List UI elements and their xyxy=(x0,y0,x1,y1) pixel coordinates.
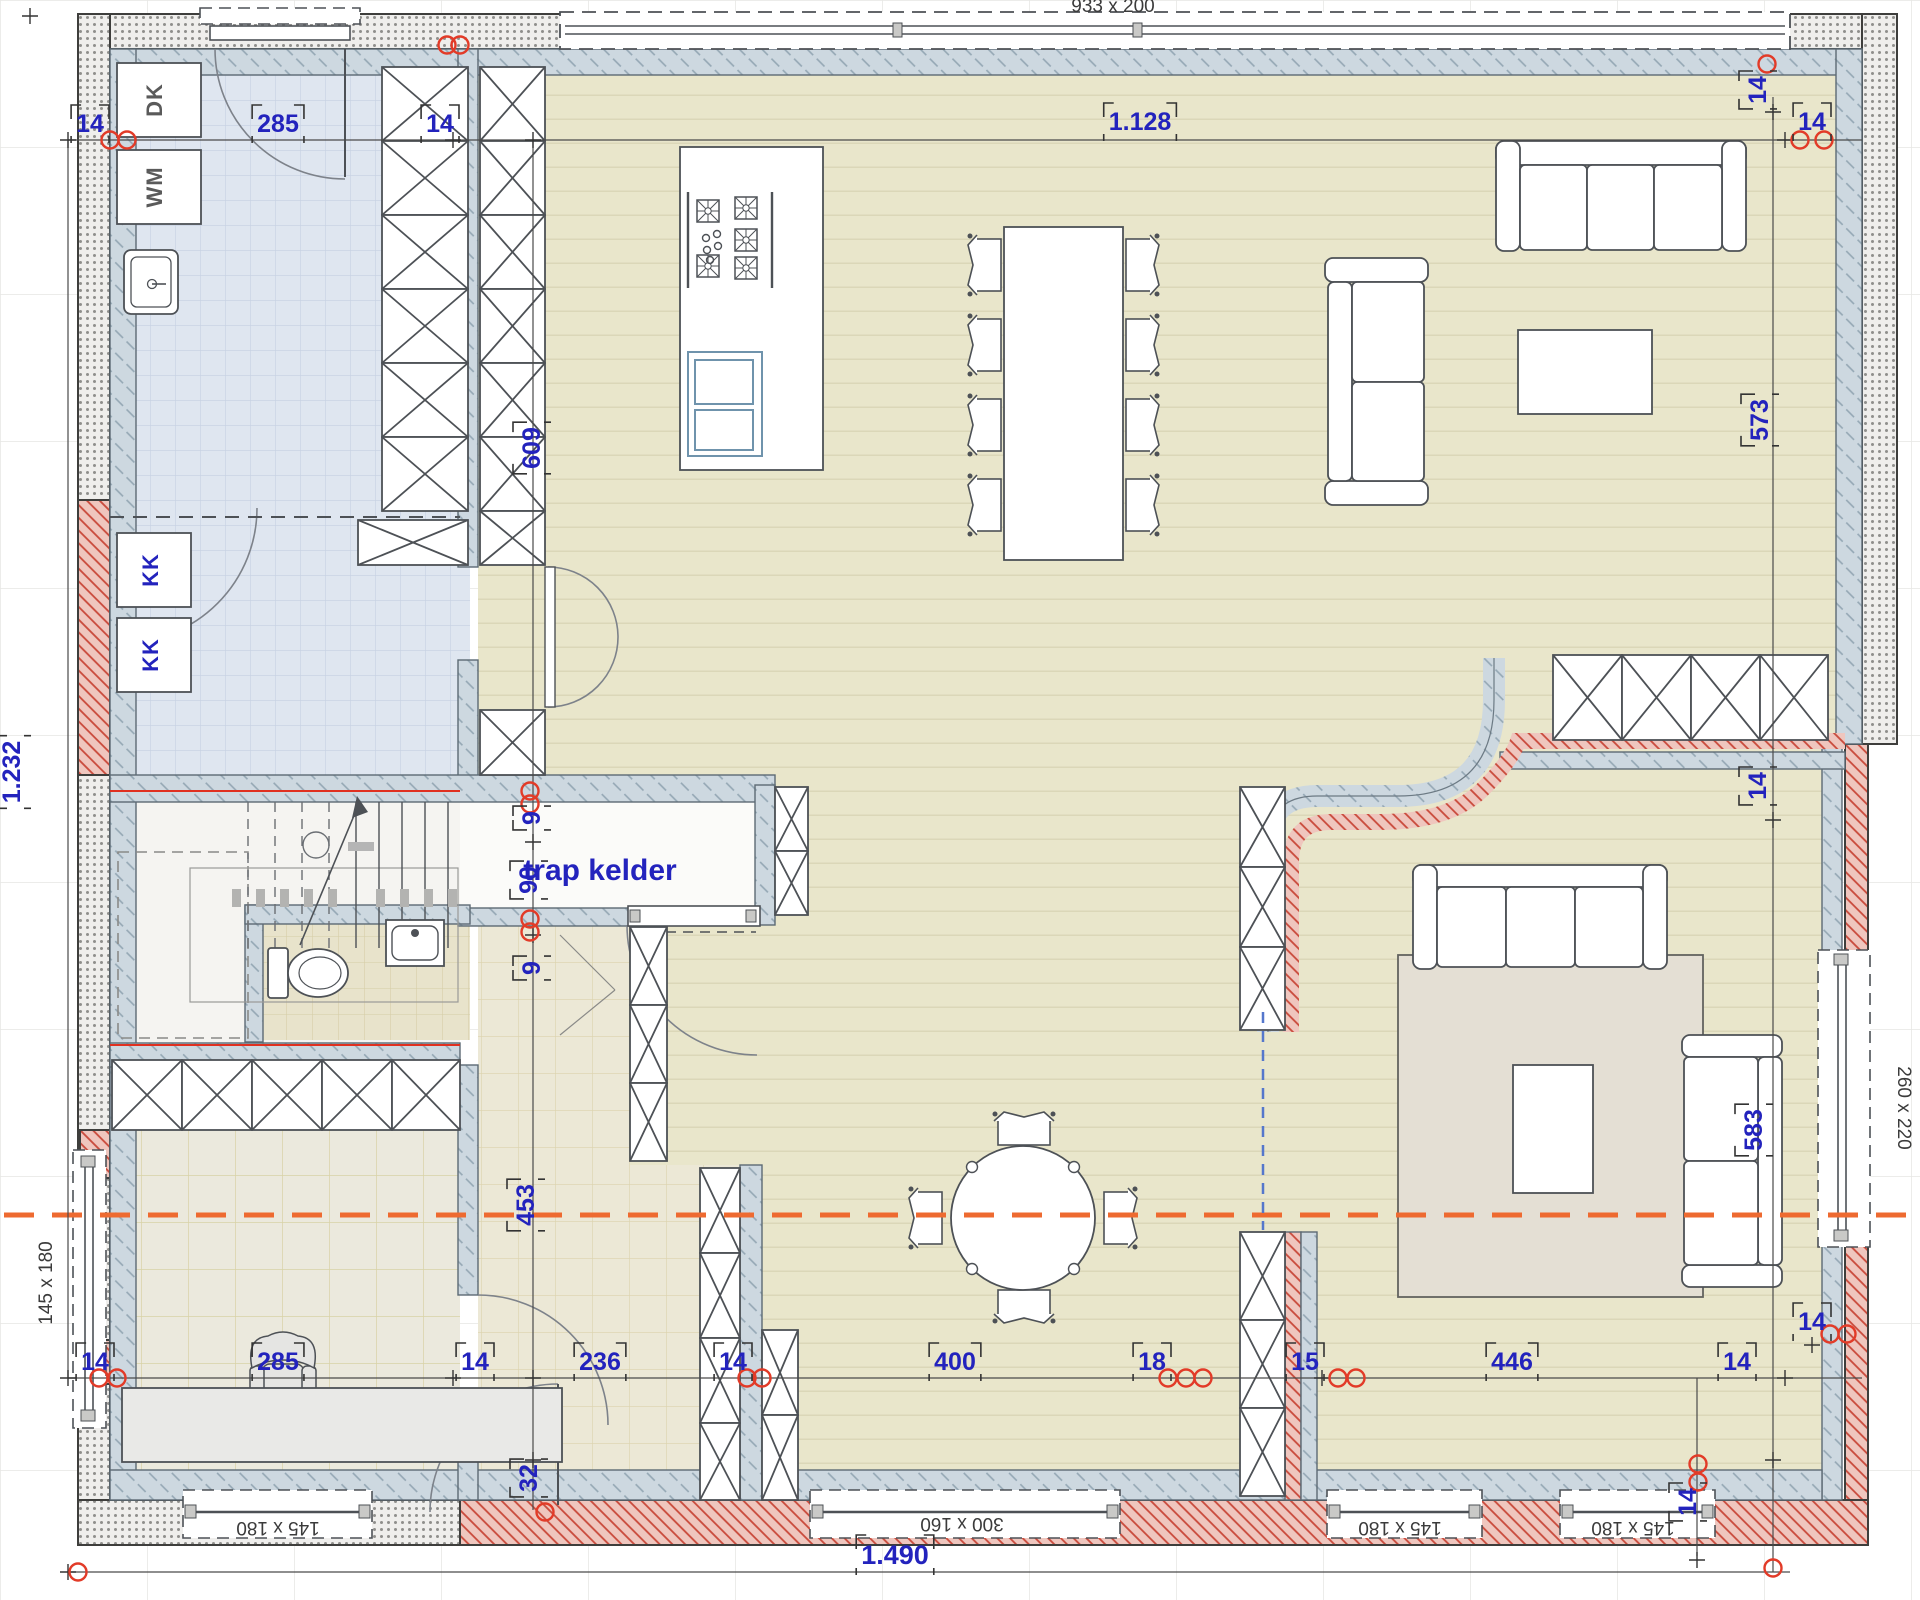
door-leaf-kitchen xyxy=(545,567,555,707)
dining-chair xyxy=(968,314,1002,377)
window-top xyxy=(560,12,1790,49)
dim-label: 14 xyxy=(1674,1488,1702,1516)
dim-label: 14 xyxy=(719,1348,747,1376)
wall-under-closet-row xyxy=(1500,752,1845,769)
appliance-wm-label: WM xyxy=(142,166,167,207)
kitchen-island xyxy=(680,147,823,470)
coffee-table xyxy=(1518,330,1652,414)
dim-label: 15 xyxy=(1291,1348,1319,1376)
dim-label: 236 xyxy=(579,1348,621,1376)
stair-handrail xyxy=(348,842,374,851)
dim-label: 14 xyxy=(81,1348,109,1376)
dining-chair xyxy=(968,474,1002,537)
island-sink xyxy=(688,352,762,456)
round-table-chair xyxy=(993,1112,1056,1146)
desk xyxy=(122,1388,562,1462)
dim-label: 400 xyxy=(934,1348,976,1376)
wall-cellarstairs-right xyxy=(755,785,775,925)
dim-label: 14 xyxy=(461,1348,489,1376)
room-label-trap-kelder: trap kelder xyxy=(523,854,677,887)
dim-label: 18 xyxy=(1138,1348,1166,1376)
window-size-label: 145 x 180 xyxy=(1591,1517,1674,1538)
dim-label: 32 xyxy=(515,1464,543,1492)
wall-insulation-left xyxy=(78,500,110,775)
lining-top xyxy=(110,49,1862,75)
lining-right-top xyxy=(1836,49,1862,744)
window-right xyxy=(1818,950,1870,1247)
sofa-side-vertical xyxy=(1682,1035,1782,1287)
dim-label: 14 xyxy=(76,110,104,138)
dim-label: 285 xyxy=(257,1348,299,1376)
dim-label: 1.232 xyxy=(0,741,26,804)
window-size-label: 145 x 180 xyxy=(1358,1517,1441,1538)
dim-label: 14 xyxy=(426,110,454,138)
sofa-left-vertical xyxy=(1325,258,1428,505)
dim-label: 14 xyxy=(1723,1348,1751,1376)
dim-total-label: 1.490 xyxy=(861,1540,929,1570)
toilet-bowl xyxy=(288,949,348,997)
dining-chair xyxy=(1126,234,1160,297)
wall-cellarstairs-bottom xyxy=(458,908,632,926)
toilet-tank xyxy=(268,948,288,998)
appliance-kk-upper-label: KK xyxy=(138,553,163,587)
dining-chair xyxy=(968,234,1002,297)
round-table-chair xyxy=(909,1187,943,1250)
dim-label: 446 xyxy=(1491,1348,1533,1376)
dim-label: 14 xyxy=(1744,76,1772,104)
window-size-label: 260 x 220 xyxy=(1893,1066,1914,1149)
window-size-label: 300 x 160 xyxy=(920,1513,1003,1534)
dim-label: 14 xyxy=(1798,1308,1826,1336)
dim-label: 9 xyxy=(518,961,546,975)
dim-label: 583 xyxy=(1740,1109,1768,1151)
sofa-top-right xyxy=(1496,141,1746,251)
dim-label: 573 xyxy=(1746,399,1774,441)
wall-outer-right-top xyxy=(1862,14,1897,744)
dim-label: 1.128 xyxy=(1109,108,1172,136)
dim-label: 285 xyxy=(257,110,299,138)
appliance-kk-lower-label: KK xyxy=(138,638,163,672)
dining-chair xyxy=(1126,474,1160,537)
appliance-dk-label: DK xyxy=(142,83,167,117)
dining-chair xyxy=(1126,394,1160,457)
dining-chair xyxy=(1126,314,1160,377)
toilet-sink xyxy=(386,920,444,966)
dining-table xyxy=(1004,227,1123,560)
wall-garage-right-upper xyxy=(458,1065,478,1295)
dim-label: 9 xyxy=(518,811,546,825)
sofa-tv xyxy=(1413,865,1667,969)
floor-plan-canvas: DK WM KK KK xyxy=(0,0,1920,1600)
dim-label: 14 xyxy=(1744,772,1772,800)
wall-stairhall-top xyxy=(110,775,775,802)
window-size-label: 933 x 200 xyxy=(1071,0,1154,17)
round-table-chair xyxy=(1104,1187,1138,1250)
side-table xyxy=(1513,1065,1593,1193)
dim-label: 609 xyxy=(518,427,546,469)
dim-label: 453 xyxy=(512,1184,540,1226)
window-size-label: 145 x 180 xyxy=(236,1517,319,1538)
wall-laundry-kitchen-lower xyxy=(458,660,478,785)
window-size-label: 145 x 180 xyxy=(36,1241,57,1324)
round-table-chair xyxy=(993,1290,1056,1324)
dim-label: 14 xyxy=(1798,108,1826,136)
dining-chair xyxy=(968,394,1002,457)
